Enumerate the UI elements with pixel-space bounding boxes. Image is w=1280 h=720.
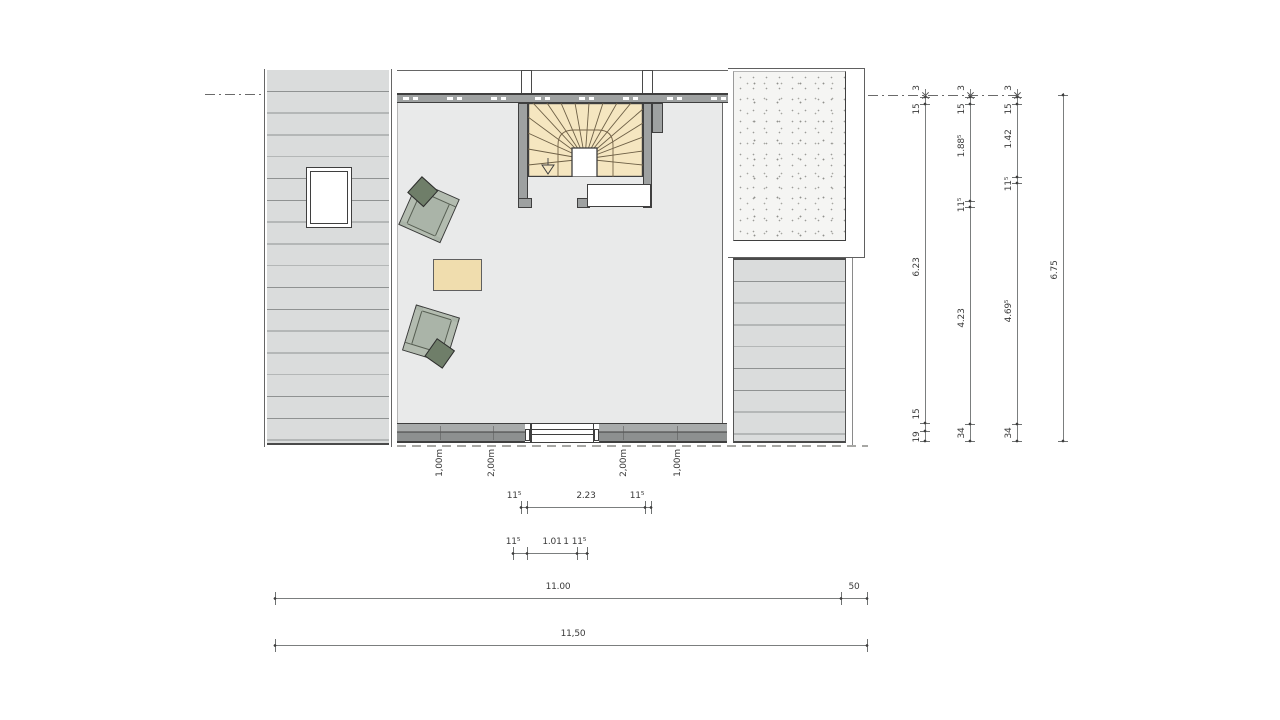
dim-tick bbox=[270, 639, 280, 652]
wall-pier-right-of-stair bbox=[652, 103, 663, 133]
ridge-line-left bbox=[205, 94, 265, 95]
dim-label: 11⁵ bbox=[605, 490, 669, 502]
bottom-window-glass-line-2 bbox=[531, 434, 593, 435]
skylight-window-inner-frame bbox=[310, 171, 348, 224]
dim-chain-2-line bbox=[970, 89, 971, 442]
winder-staircase bbox=[528, 103, 643, 177]
roof-strip-left-hatch bbox=[267, 70, 389, 445]
bottom-window-jamb-left bbox=[530, 424, 532, 442]
overall-dim-line bbox=[275, 598, 867, 599]
stair-wall-post-right bbox=[642, 70, 653, 94]
dim-label: 6.23 bbox=[911, 235, 923, 299]
bottom-window-sill-step-right bbox=[594, 429, 599, 441]
roof-height-label: 2,00m bbox=[486, 431, 498, 495]
dim-tick bbox=[836, 592, 846, 605]
bottom-window-opening bbox=[525, 424, 599, 442]
stair-wall-post-left bbox=[521, 70, 532, 94]
dim-tick bbox=[522, 501, 532, 514]
dim-label: 1.88⁵ bbox=[956, 114, 968, 178]
bottom-window-sill-step-left bbox=[525, 429, 530, 441]
coffee-table bbox=[433, 259, 482, 291]
dim-label: 34 bbox=[1003, 401, 1015, 465]
dim-tick bbox=[646, 501, 656, 514]
top-wall bbox=[397, 93, 731, 103]
dim-tick bbox=[582, 547, 592, 560]
dim-tick bbox=[1058, 436, 1068, 446]
dim-label: 11.00 bbox=[526, 581, 590, 593]
dim-label: 11⁵ bbox=[1003, 152, 1015, 216]
dim-label: 50 bbox=[822, 581, 886, 593]
dim-label: 4.69⁵ bbox=[1003, 279, 1015, 343]
eave-dashed-line bbox=[397, 445, 868, 447]
window-dim-line bbox=[521, 507, 651, 508]
skylight-window bbox=[306, 167, 352, 228]
dim-tick bbox=[862, 639, 872, 652]
dim-label: 19 bbox=[911, 405, 923, 469]
stair-wall-left bbox=[518, 103, 528, 201]
roof-strip-right-hatch bbox=[733, 258, 846, 443]
dim-label: 4.23 bbox=[956, 286, 968, 350]
roof-height-label: 1,00m bbox=[672, 431, 684, 495]
terrace-stipple bbox=[733, 71, 846, 241]
dim-label: 6.75 bbox=[1049, 238, 1061, 302]
dim-tick bbox=[572, 547, 582, 560]
roof-height-label: 2,00m bbox=[618, 431, 630, 495]
dim-label: 11⁵ bbox=[956, 173, 968, 237]
roof-strip-left bbox=[264, 69, 392, 447]
top-wall-fixing-dashes bbox=[403, 97, 727, 100]
roof-strip-right-outer-line bbox=[852, 258, 853, 447]
stair-landing-void bbox=[587, 184, 651, 207]
dim-chain-1-line bbox=[925, 89, 926, 442]
dim-tick bbox=[270, 592, 280, 605]
dim-label: 11⁵ bbox=[547, 536, 611, 548]
dim-tick bbox=[522, 547, 532, 560]
dim-label: 34 bbox=[956, 401, 968, 465]
dim-tick bbox=[1058, 90, 1068, 100]
dim-tick bbox=[508, 547, 518, 560]
balcony-outline bbox=[728, 68, 865, 258]
ridge-line-right bbox=[868, 95, 1022, 96]
dim-label: 11,50 bbox=[541, 628, 605, 640]
dim-label: 15 bbox=[911, 77, 923, 141]
dim-chain-4-line bbox=[1063, 93, 1064, 442]
dim-tick bbox=[862, 592, 872, 605]
bottom-window-glass-line-1 bbox=[531, 429, 593, 430]
roof-height-label: 1,00m bbox=[434, 431, 446, 495]
stair-wall-left-foot bbox=[518, 198, 532, 208]
dim-chain-3-line bbox=[1017, 89, 1018, 442]
total-dim-line bbox=[275, 645, 867, 646]
floor-plan-canvas: 3 15 6.23 15 19 3 15 1.88⁵ 11⁵ 4.23 34 3… bbox=[0, 0, 1280, 720]
roof-overhang-top bbox=[397, 70, 731, 93]
